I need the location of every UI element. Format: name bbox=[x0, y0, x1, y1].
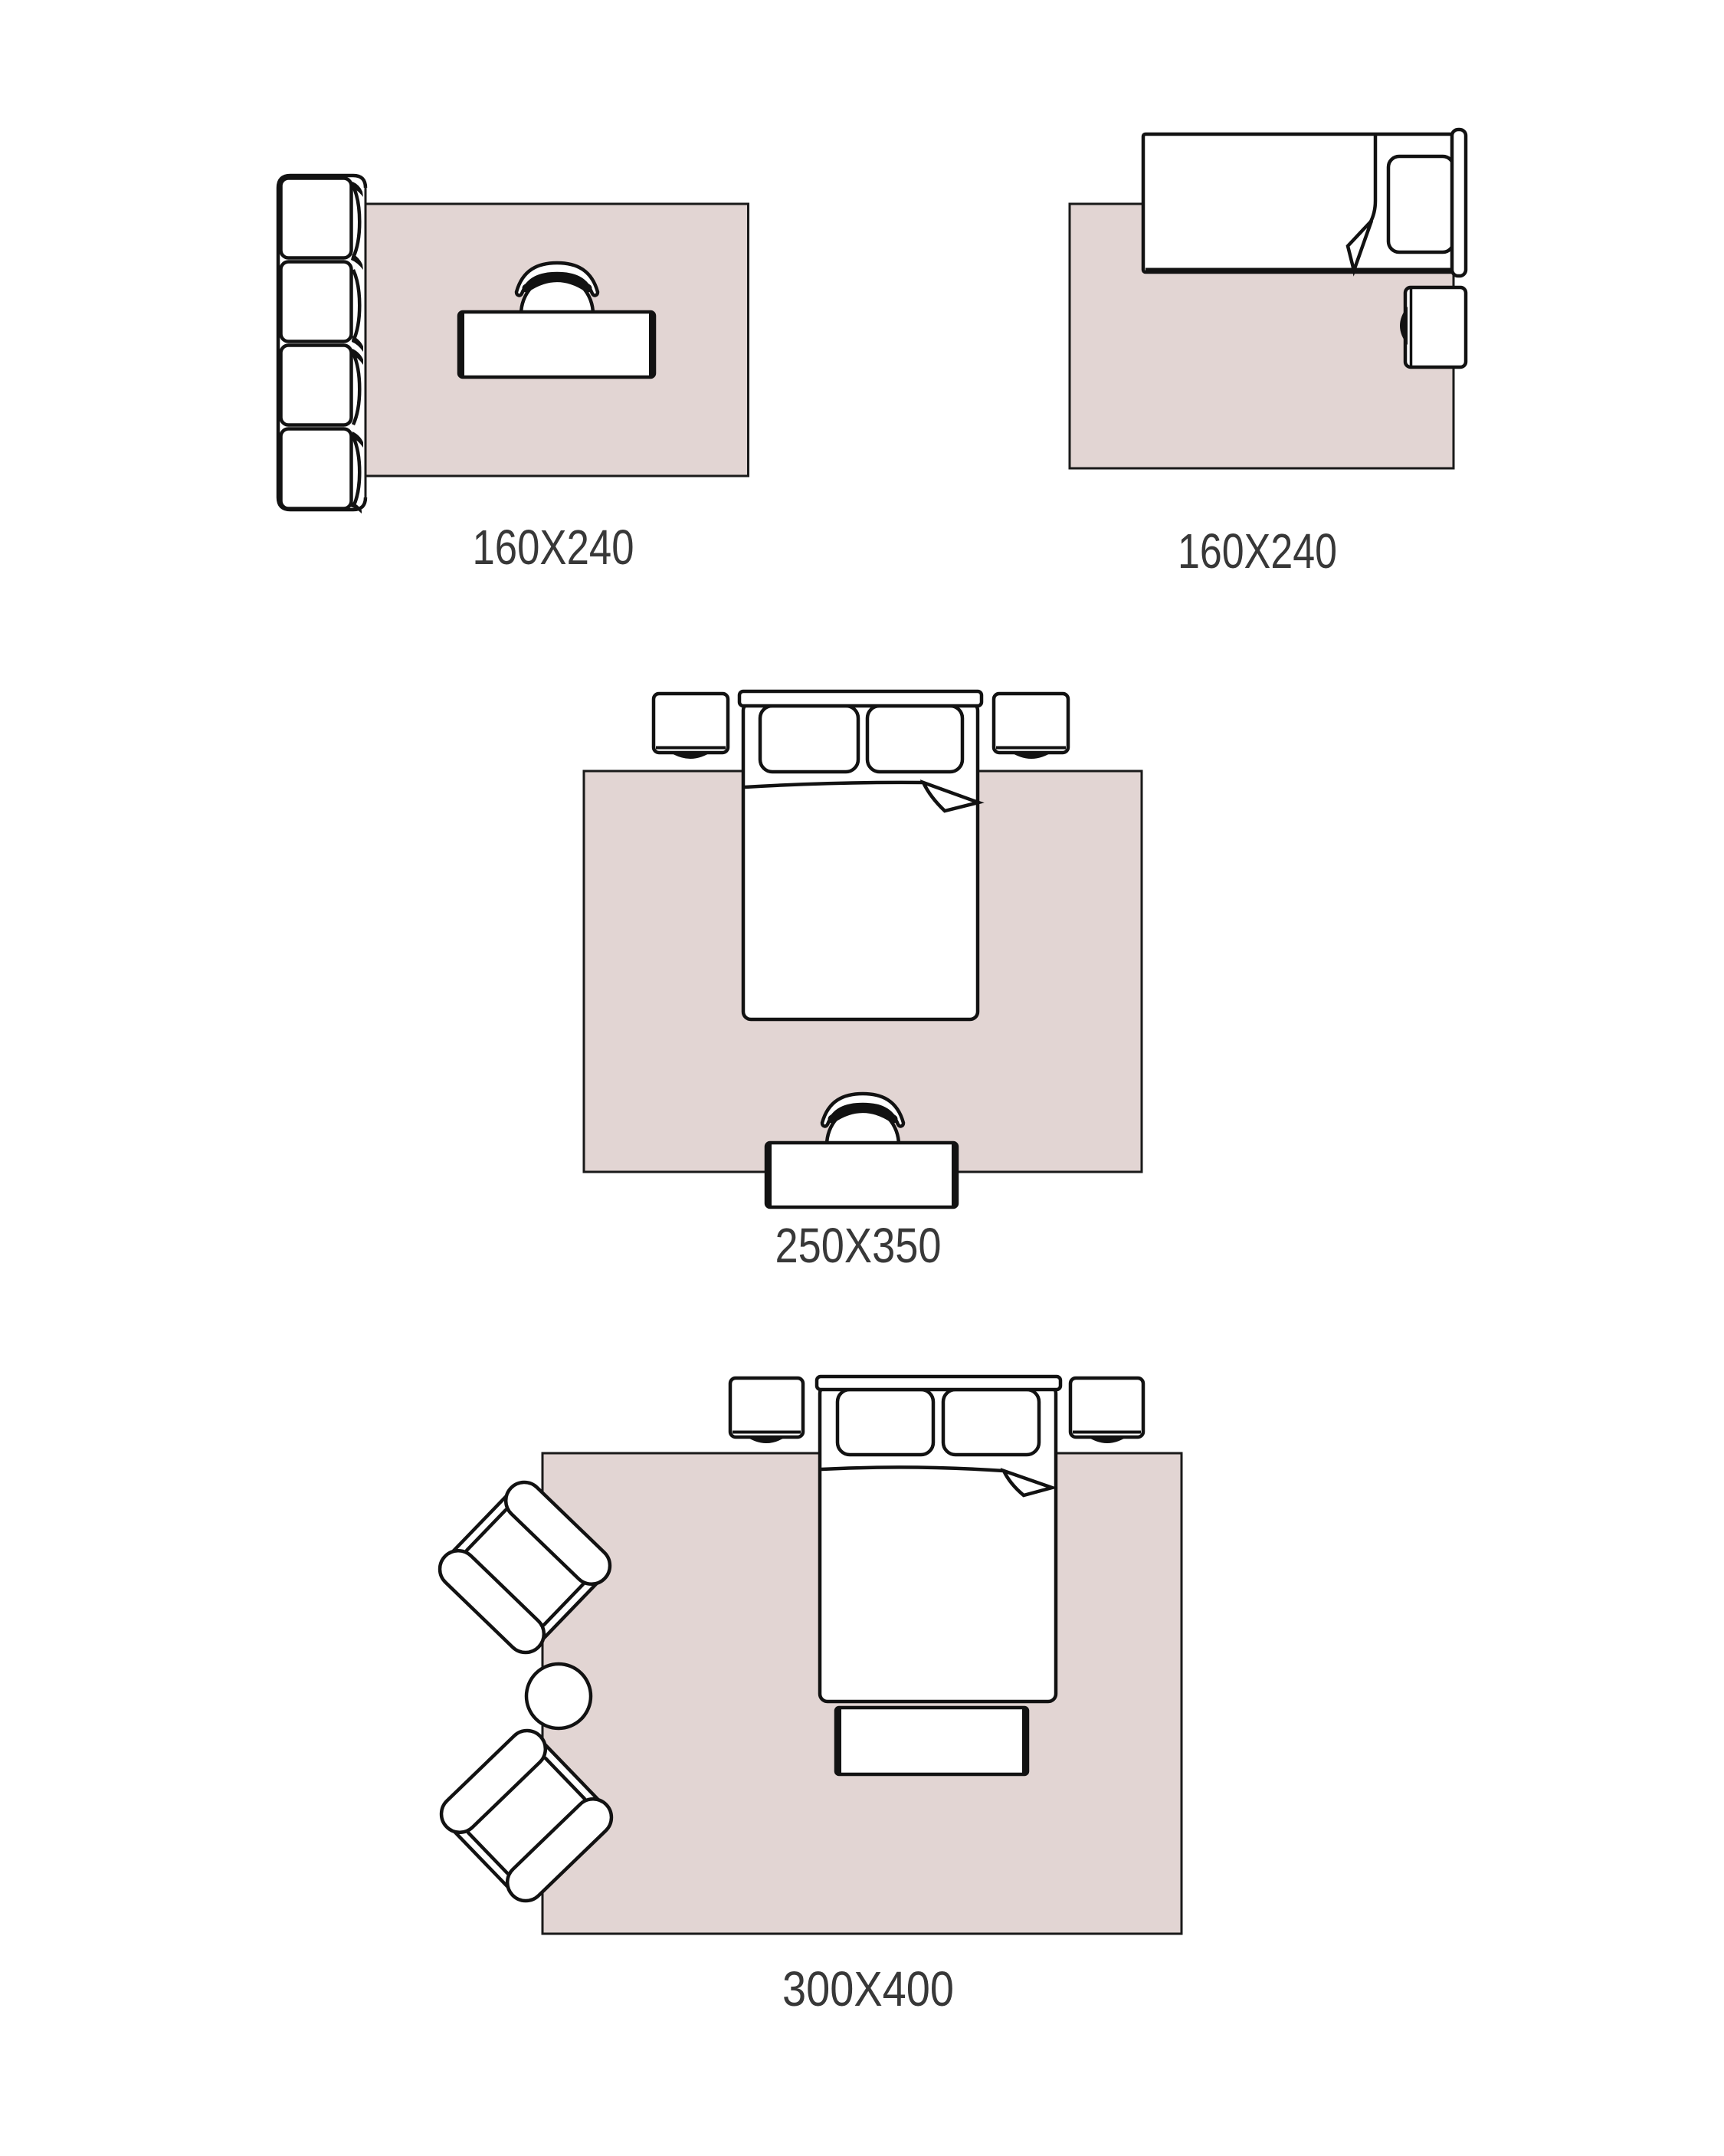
svg-text:160X240: 160X240 bbox=[1178, 523, 1337, 579]
svg-text:300X400: 300X400 bbox=[782, 1961, 954, 2017]
svg-text:160X240: 160X240 bbox=[473, 520, 634, 575]
svg-text:250X350: 250X350 bbox=[775, 1218, 942, 1273]
